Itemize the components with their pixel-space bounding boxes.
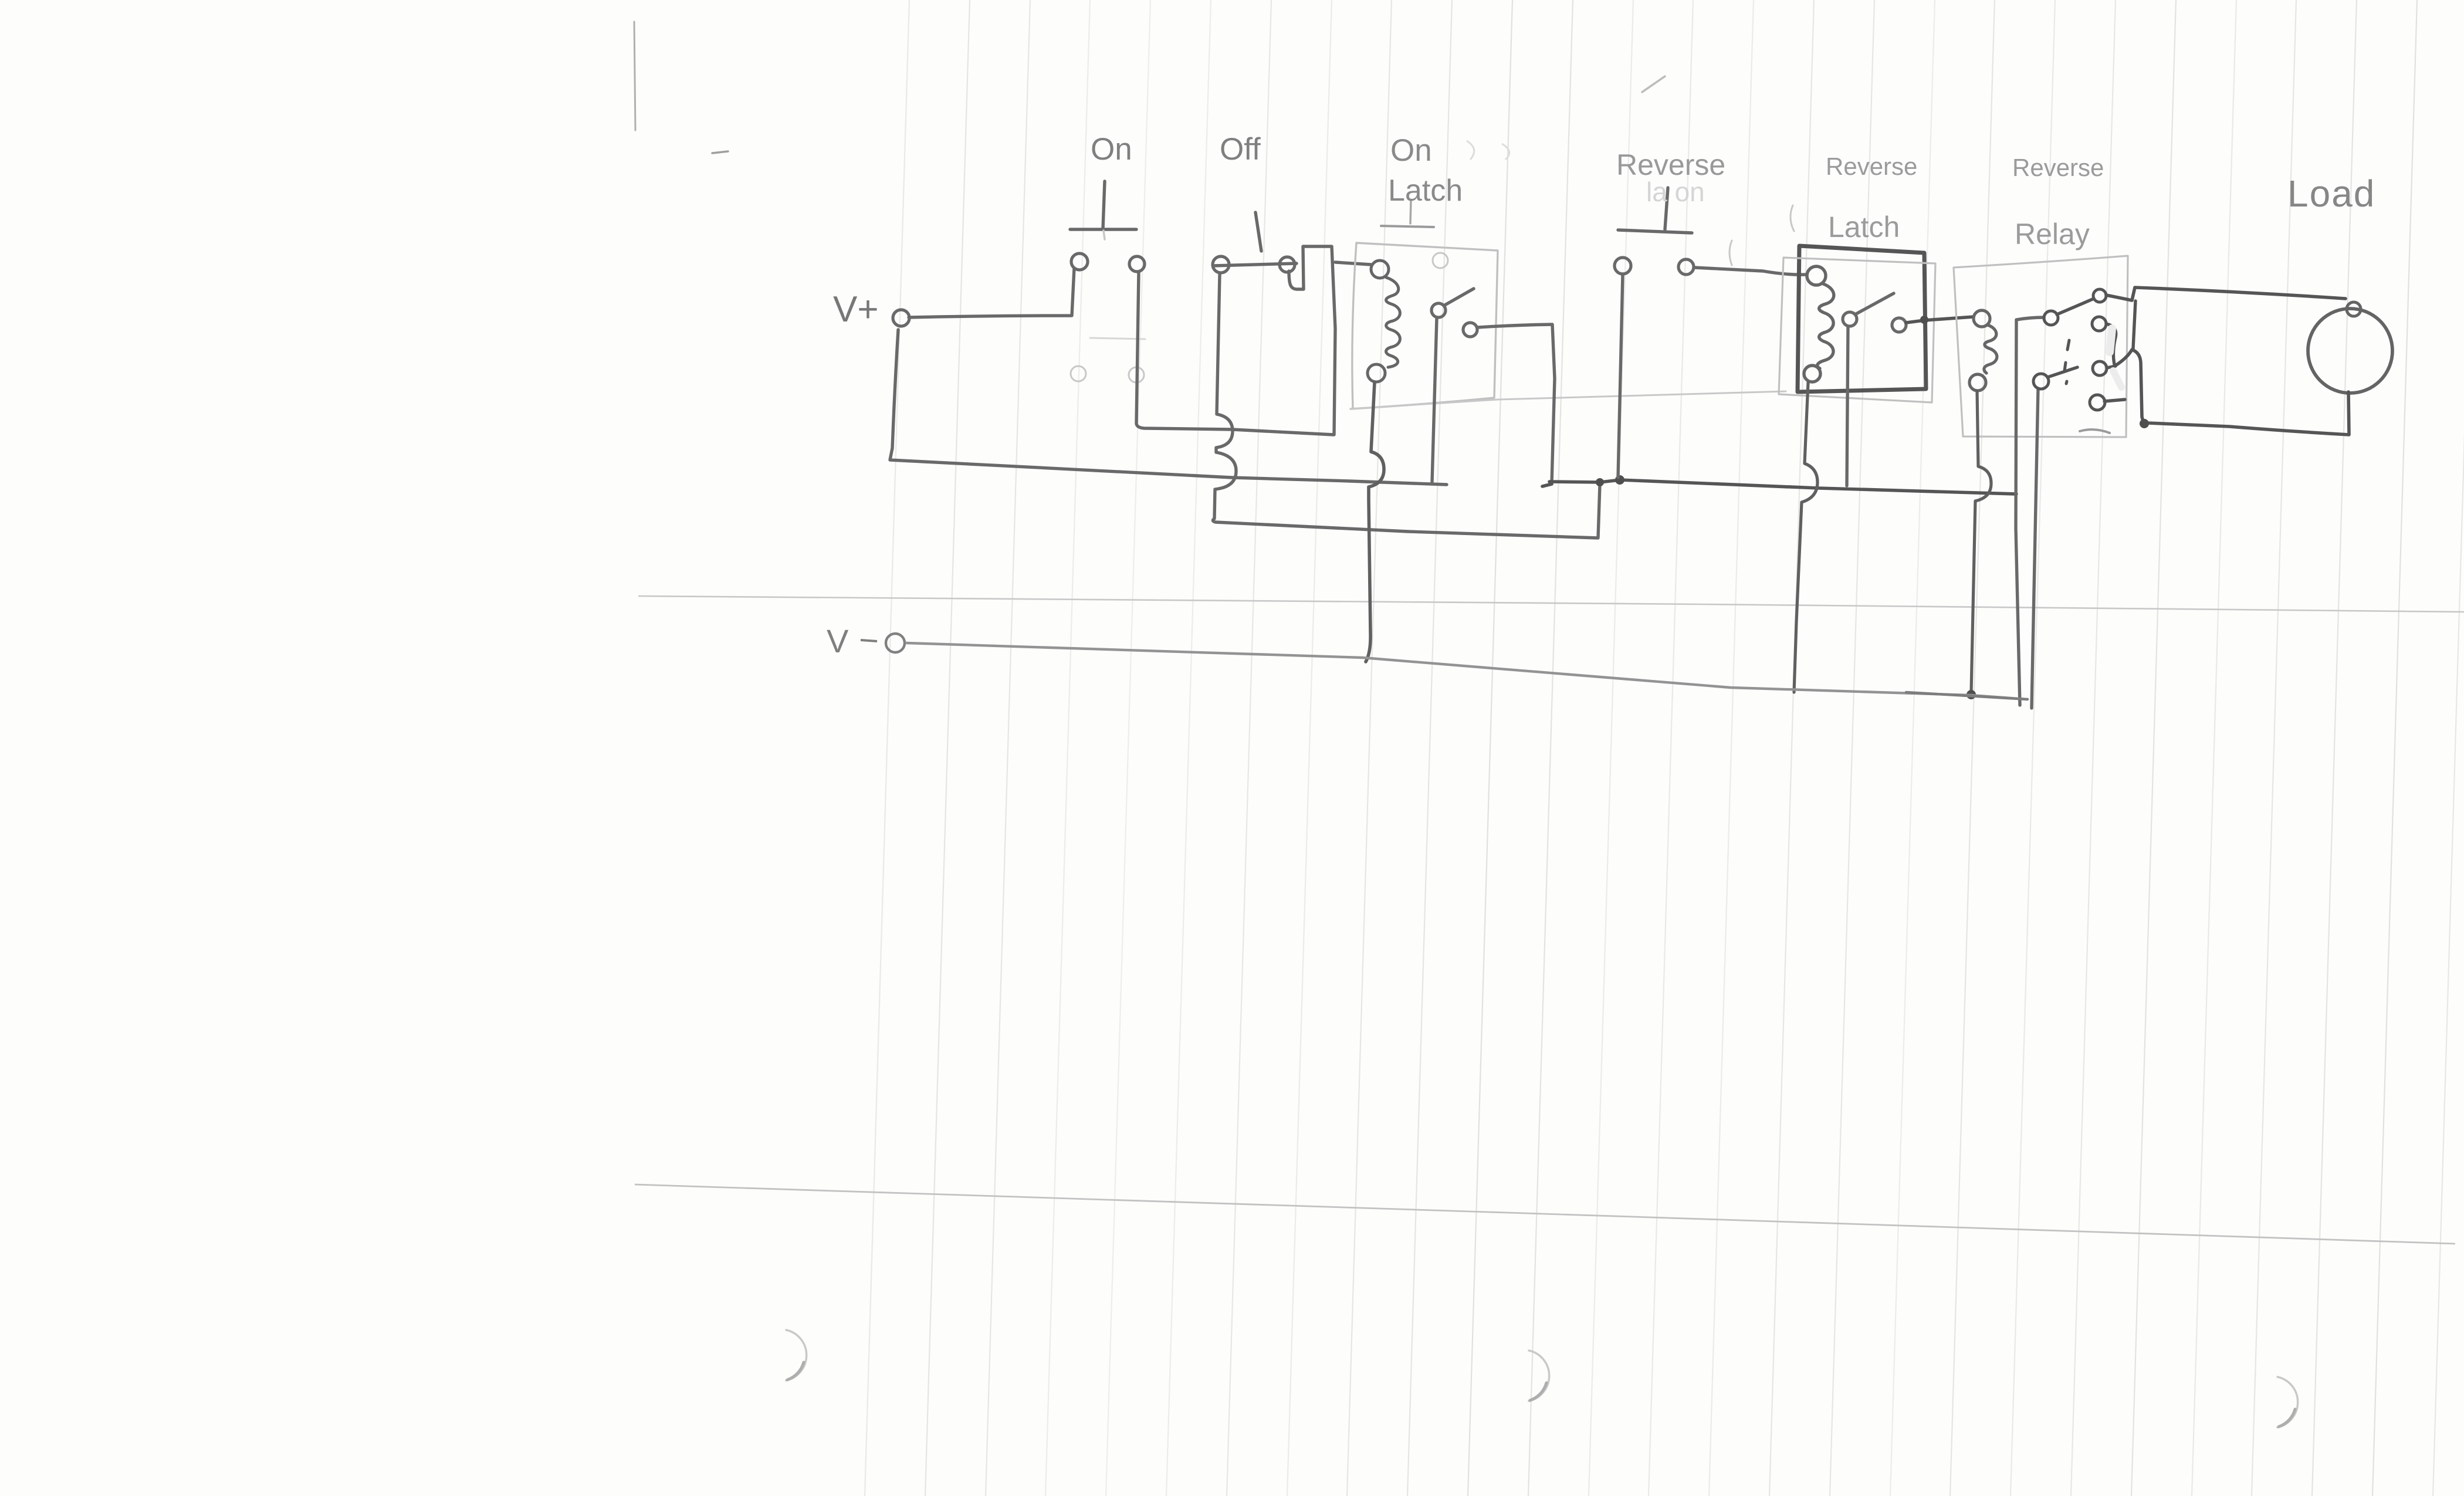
svg-text:Relay: Relay — [2015, 218, 2090, 251]
svg-text:On: On — [1091, 132, 1132, 167]
svg-text:la on: la on — [1646, 177, 1705, 207]
svg-text:Load: Load — [2287, 172, 2375, 215]
svg-text:Latch: Latch — [1828, 211, 1900, 243]
svg-text:On: On — [1390, 133, 1432, 168]
svg-text:Reverse: Reverse — [2012, 154, 2104, 181]
svg-text:Latch: Latch — [1388, 174, 1463, 208]
svg-text:Off: Off — [1220, 132, 1261, 167]
svg-text:Reverse: Reverse — [1826, 153, 1917, 180]
svg-text:V: V — [827, 622, 849, 659]
svg-text:V+: V+ — [833, 289, 879, 330]
